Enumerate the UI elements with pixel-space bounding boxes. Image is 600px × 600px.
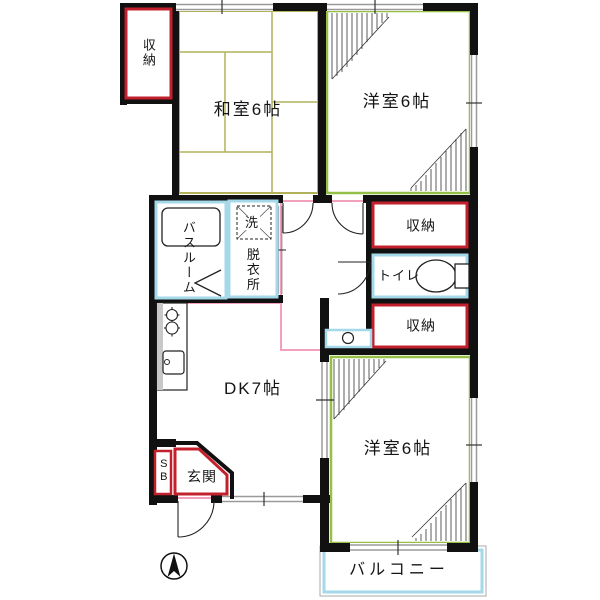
floor-plan-drawing — [0, 0, 600, 600]
yoshitsu-bottom-label: 洋室6帖 — [364, 440, 432, 458]
storage-top-left-label: 収納 — [141, 38, 155, 68]
storage-right-upper-label: 収納 — [406, 219, 436, 234]
dk-label: DK7帖 — [224, 380, 282, 398]
kitchen-counter — [157, 303, 187, 390]
shoe-box-label: SB — [157, 458, 169, 484]
toilet-label: トイレ — [378, 269, 420, 283]
compass-north-icon — [161, 553, 187, 579]
dressing-room-label: 脱衣所 — [245, 248, 259, 293]
yoshitsu-top-label: 洋室6帖 — [363, 93, 431, 111]
entry-door-icon — [178, 501, 214, 537]
washbasin-box — [326, 330, 371, 347]
washer-space-label: 洗 — [244, 216, 260, 230]
balcony-label: バルコニー — [349, 563, 449, 580]
kitchen-sink-icon — [163, 351, 184, 374]
genkan-label: 玄関 — [187, 470, 217, 485]
washitsu-label: 和室6帖 — [214, 101, 282, 119]
toilet-icon — [416, 260, 469, 292]
storage-right-lower-label: 収納 — [406, 319, 436, 334]
floor-plan: 収納 和室6帖 洋室6帖 バスルーム 洗 脱衣所 収納 トイレ 収納 DK7帖 … — [0, 0, 600, 600]
bathroom-label: バスルーム — [181, 221, 195, 296]
washbasin-icon — [343, 333, 354, 344]
